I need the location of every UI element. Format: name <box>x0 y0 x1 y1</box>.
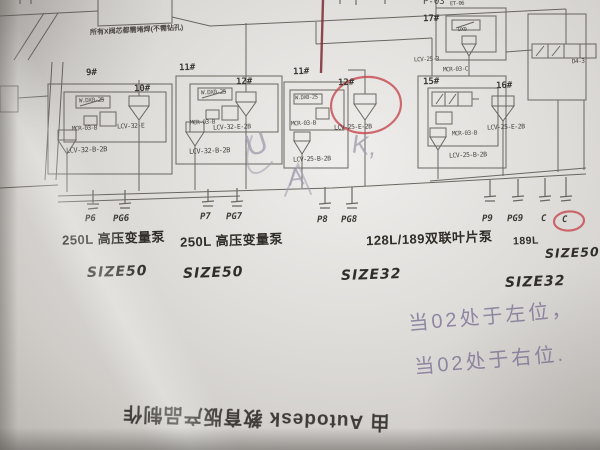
port-label: PG6 <box>113 214 130 225</box>
dark-red-pen-line <box>321 0 323 73</box>
station-id: 17# <box>423 14 440 25</box>
station-id: 11# <box>293 67 310 78</box>
valve-model-label: D4-3 <box>572 58 585 65</box>
port-label-p03: P-03 <box>423 0 445 7</box>
station-id: 11# <box>179 63 196 74</box>
pump-size: SIZE32 <box>505 273 566 291</box>
printed-schematic-layer: 所有X阀芯都需堵焊(不需钻孔) P-03 9# 10# 11# 12# 11# … <box>0 0 600 450</box>
pump-name: 189L <box>513 235 539 248</box>
mid-valve-label: DX0 <box>458 27 467 33</box>
mid-valve-label: MCR-03-B <box>190 119 215 127</box>
pilot-valve-label: W.DX0-25 <box>295 95 318 102</box>
pilot-valve-label: ET-06 <box>450 1 464 7</box>
valve-model-label: LCV-25-B-2B <box>449 150 487 159</box>
pencil-scribble: K, <box>350 128 379 162</box>
photo-of-hydraulic-schematic: 所有X阀芯都需堵焊(不需钻孔) P-03 9# 10# 11# 12# 11# … <box>0 0 600 450</box>
port-label-circled: C <box>562 215 568 225</box>
pencil-scribble: A <box>287 163 306 193</box>
station-id: 10# <box>134 84 151 95</box>
port-label: P7 <box>200 212 211 222</box>
pilot-valve-label: MCR-03-C <box>443 66 468 74</box>
port-label: PG7 <box>226 212 243 223</box>
port-label: P6 <box>85 214 96 224</box>
station-id: 15# <box>423 77 440 88</box>
valve-model-label: LCV-25-B-2B <box>293 154 331 163</box>
station-id: 12# <box>338 78 355 89</box>
port-label: PG8 <box>341 215 358 226</box>
pump-name: 250L 高压变量泵 <box>62 226 166 249</box>
valve-model-label: LCV-32-E <box>117 122 145 131</box>
pump-size: SIZE50 <box>545 244 600 261</box>
valve-model-label: LCV-25-3 <box>414 56 439 64</box>
station-id: 9# <box>86 68 97 78</box>
pump-name: 250L 高压变量泵 <box>180 228 284 251</box>
valve-model-label: LCV-32-B-2B <box>66 145 107 154</box>
mid-valve-label: MCR-03-B <box>291 120 316 128</box>
pilot-valve-label: W.DX0-25 <box>79 97 104 105</box>
valve-model-label: LCV-32-B-2B <box>189 146 230 155</box>
mid-valve-label: MCR-03-B <box>452 130 477 138</box>
pump-size: SIZE50 <box>87 263 148 281</box>
mid-valve-label: MCR-03-B <box>72 125 97 133</box>
valve-model-label: LCV-25-E-2B <box>487 122 525 131</box>
port-label: P9 <box>482 214 493 224</box>
port-label: P8 <box>317 215 328 225</box>
port-label: PG9 <box>507 214 524 225</box>
pump-size: SIZE50 <box>183 264 244 282</box>
pilot-valve-label: W.DX0-25 <box>201 89 226 97</box>
pump-size: SIZE32 <box>341 266 402 284</box>
station-id: 16# <box>496 81 513 92</box>
station-id: 12# <box>236 77 253 88</box>
port-label: C <box>541 214 547 224</box>
